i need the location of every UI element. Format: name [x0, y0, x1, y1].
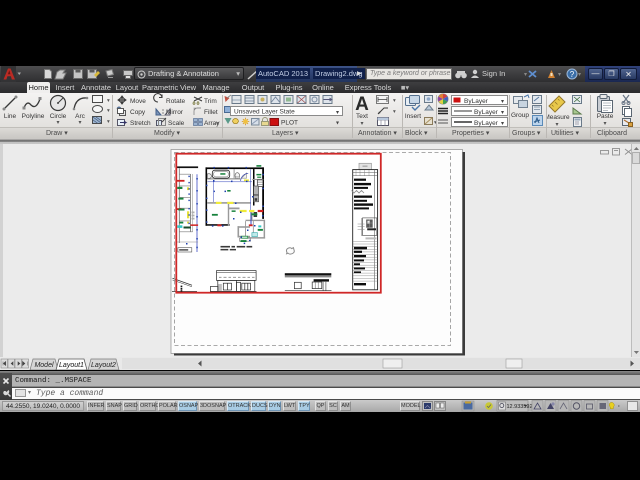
svg-text:▾: ▾: [501, 99, 504, 105]
svg-text:▾: ▾: [393, 109, 396, 115]
svg-text:Unsaved Layer State: Unsaved Layer State: [234, 109, 295, 116]
svg-text:Line: Line: [4, 113, 17, 120]
svg-text:Polyline: Polyline: [22, 113, 45, 120]
svg-text:Fillet: Fillet: [204, 109, 218, 116]
svg-text:Layout1: Layout1: [59, 362, 84, 369]
svg-text:▾: ▾: [56, 120, 59, 126]
svg-text:Measure: Measure: [546, 114, 570, 121]
svg-text:Layout2: Layout2: [91, 362, 116, 369]
svg-text:Trim: Trim: [204, 98, 217, 105]
svg-text:12.933592: 12.933592: [507, 404, 533, 410]
svg-text:Rotate: Rotate: [166, 98, 186, 105]
svg-text:ByLayer: ByLayer: [474, 109, 499, 116]
svg-text:▾: ▾: [501, 110, 504, 116]
svg-text:Model: Model: [34, 362, 54, 369]
svg-text:▾: ▾: [107, 98, 110, 104]
svg-text:▾: ▾: [107, 108, 110, 114]
svg-text:Paste: Paste: [597, 113, 614, 120]
svg-text:PLOT: PLOT: [281, 120, 298, 127]
svg-text:Insert: Insert: [405, 113, 421, 120]
svg-text:Text: Text: [356, 113, 368, 120]
svg-text:▾: ▾: [336, 121, 339, 127]
svg-text:▾: ▾: [107, 119, 110, 125]
svg-text:Group: Group: [511, 112, 529, 119]
svg-text:ByLayer: ByLayer: [464, 98, 489, 105]
svg-text:▾: ▾: [336, 110, 339, 116]
svg-text:Move: Move: [130, 98, 146, 105]
svg-text:ByLayer: ByLayer: [474, 120, 499, 127]
svg-text:Copy: Copy: [130, 109, 146, 116]
svg-text:▾: ▾: [393, 98, 396, 104]
svg-text:A: A: [355, 94, 369, 115]
svg-text:Mirror: Mirror: [166, 109, 184, 116]
svg-text:Circle: Circle: [50, 113, 67, 120]
svg-text:?: ?: [570, 70, 575, 79]
svg-text:▾: ▾: [78, 120, 81, 126]
svg-text:Stretch: Stretch: [130, 120, 151, 127]
svg-text:Arc: Arc: [75, 113, 86, 120]
svg-text:Scale: Scale: [168, 120, 185, 127]
